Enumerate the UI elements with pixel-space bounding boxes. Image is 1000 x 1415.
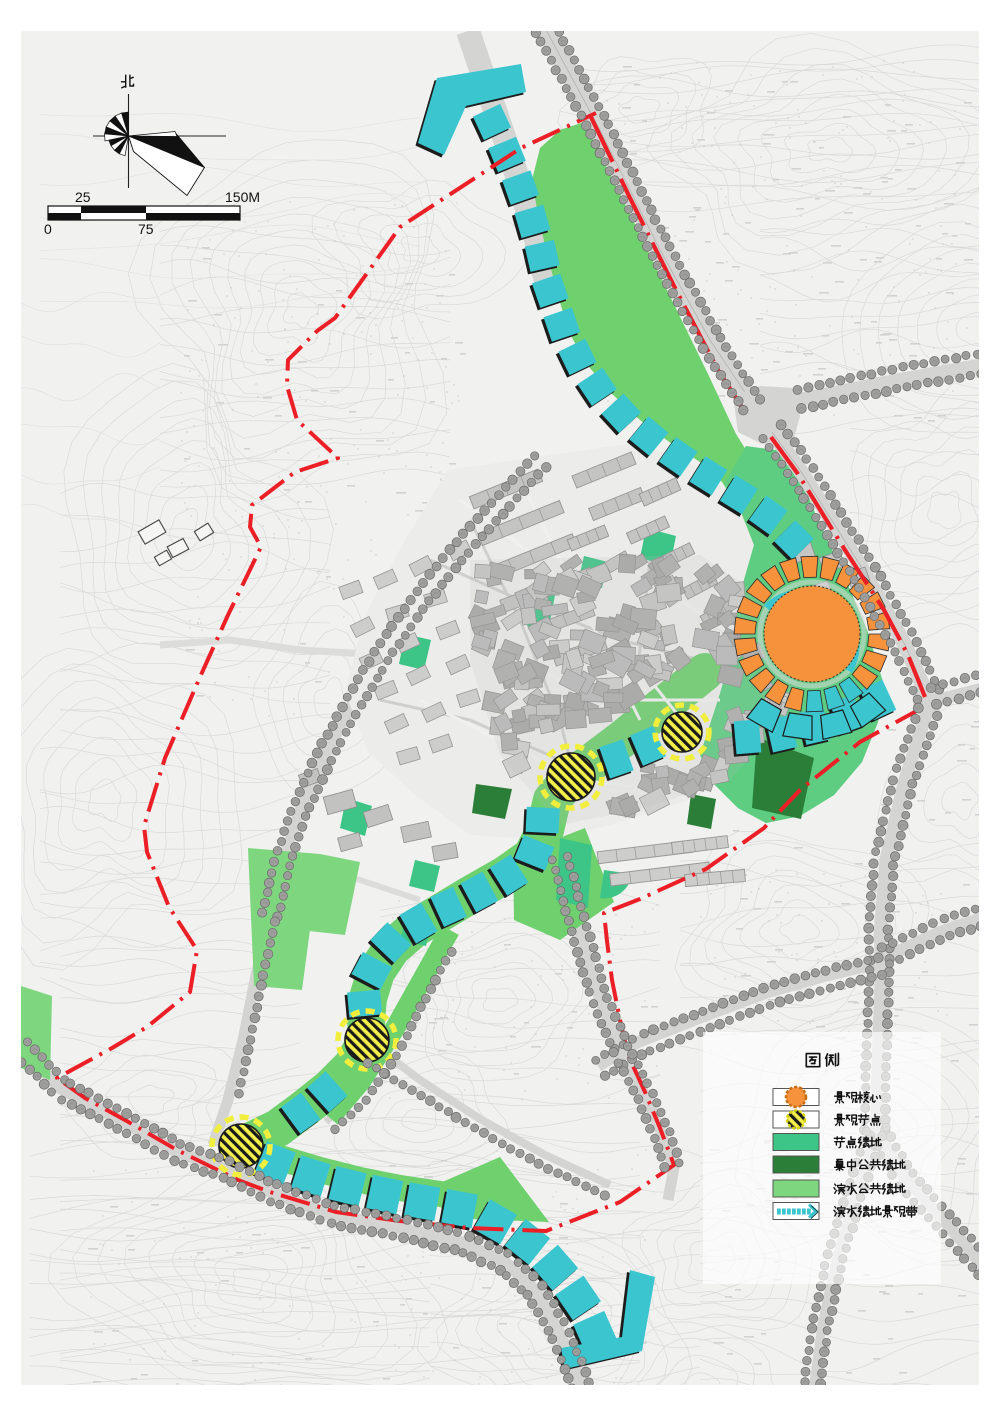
svg-text:150M: 150M bbox=[225, 189, 260, 205]
svg-text:75: 75 bbox=[138, 221, 154, 237]
svg-text:0: 0 bbox=[44, 221, 52, 237]
svg-text:25: 25 bbox=[75, 189, 91, 205]
